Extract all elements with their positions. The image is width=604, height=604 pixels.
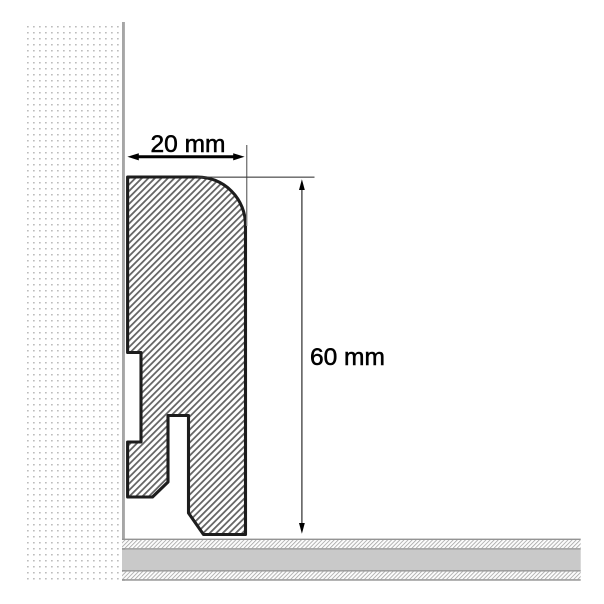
svg-text:60 mm: 60 mm xyxy=(310,344,385,371)
svg-text:20 mm: 20 mm xyxy=(151,131,226,158)
